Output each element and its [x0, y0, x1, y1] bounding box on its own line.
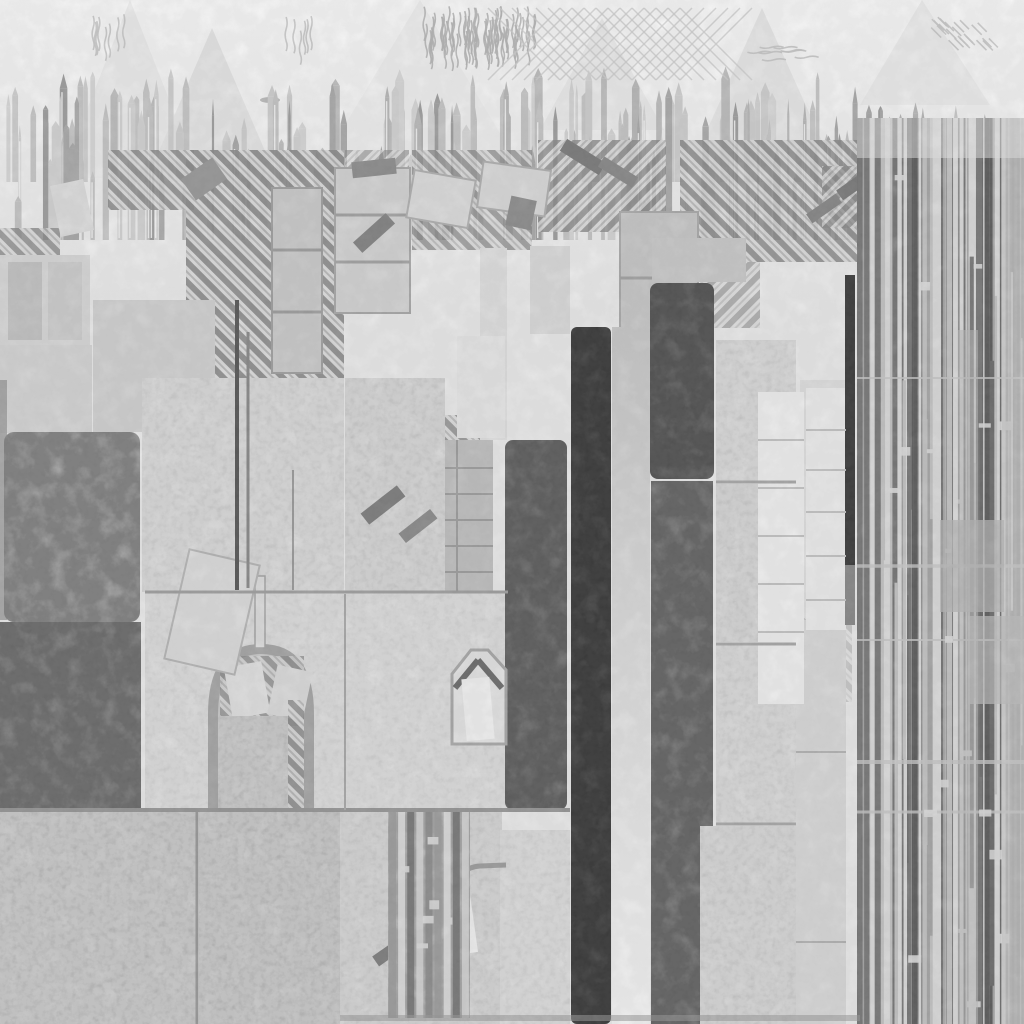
global-grain-overlay	[0, 0, 1024, 1024]
abstract-grayscale-block-texture	[0, 0, 1024, 1024]
texture-stage	[0, 0, 1024, 1024]
global-grain-light	[0, 0, 1024, 1024]
